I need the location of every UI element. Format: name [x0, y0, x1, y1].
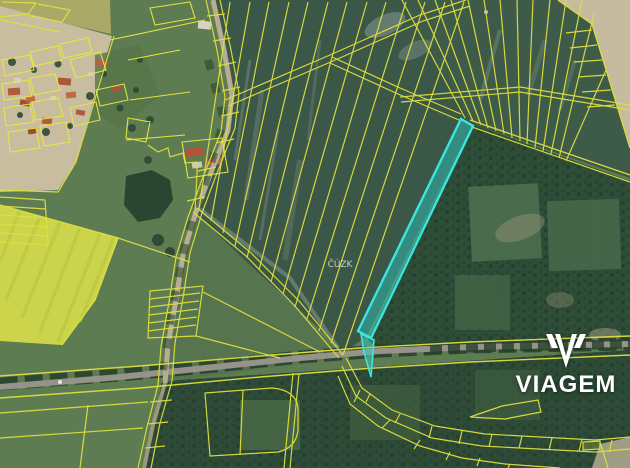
cuzk-watermark: ČÚZK	[328, 258, 354, 270]
map-viewport[interactable]: ČÚZK VIAGEM	[0, 0, 630, 468]
viagem-logo-text: VIAGEM	[516, 371, 617, 398]
satellite-map: ČÚZK VIAGEM	[0, 0, 630, 468]
